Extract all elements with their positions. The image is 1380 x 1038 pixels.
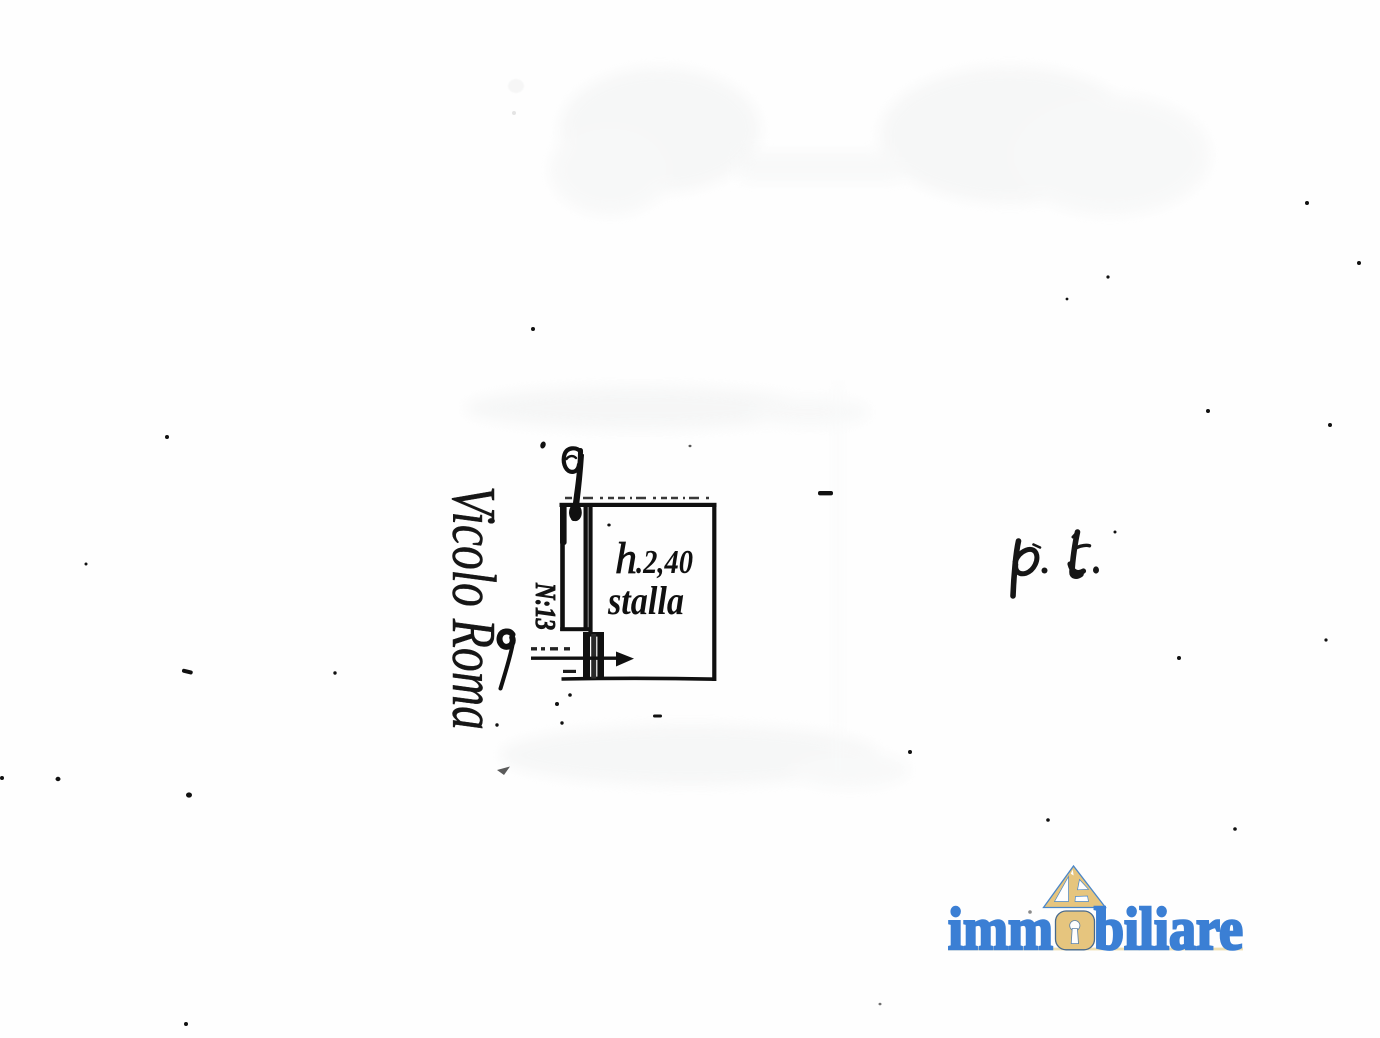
svg-text:biliare: biliare [1094, 896, 1243, 962]
svg-text:Vicolo Roma: Vicolo Roma [439, 486, 507, 730]
svg-text:imm: imm [948, 896, 1053, 962]
svg-text:.2,40: .2,40 [636, 544, 693, 581]
svg-text:stalla: stalla [607, 578, 684, 623]
svg-text:h: h [615, 534, 637, 583]
svg-text:N:13: N:13 [529, 582, 560, 630]
